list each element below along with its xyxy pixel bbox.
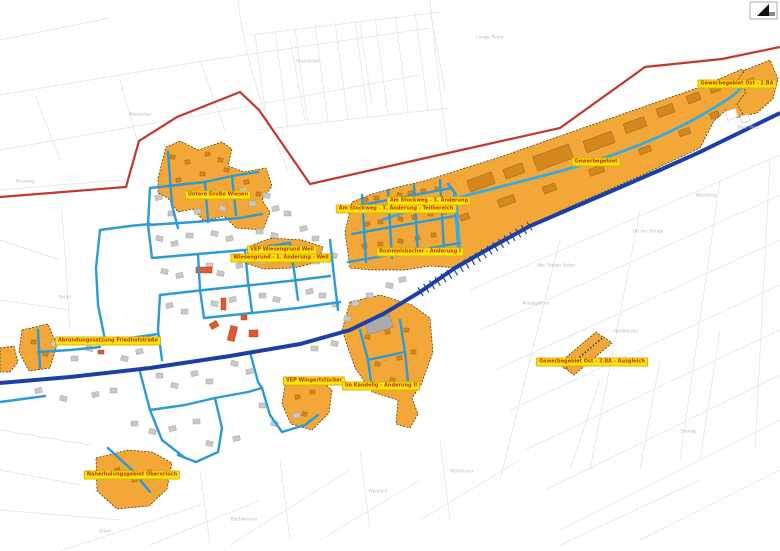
building bbox=[256, 192, 261, 196]
building bbox=[235, 262, 243, 269]
building bbox=[168, 425, 176, 432]
building bbox=[216, 270, 224, 277]
building bbox=[200, 172, 205, 176]
building bbox=[284, 211, 291, 216]
building bbox=[398, 239, 404, 244]
building bbox=[312, 236, 319, 241]
building bbox=[375, 362, 381, 367]
building bbox=[365, 222, 371, 227]
building bbox=[210, 300, 218, 307]
plan-label-wiesengrund-1-aenderung-weil[interactable]: Wiesengrund - 1. Änderung - Weil bbox=[230, 254, 331, 263]
building bbox=[209, 320, 219, 329]
building bbox=[205, 152, 210, 156]
building bbox=[249, 330, 258, 337]
map-basemap bbox=[0, 0, 780, 551]
building bbox=[397, 356, 403, 361]
building bbox=[305, 288, 313, 295]
building bbox=[227, 325, 237, 341]
building bbox=[193, 419, 200, 424]
plan-label-rommelsbacher-aenderung-1[interactable]: Rommelsbacher - Änderung I bbox=[376, 248, 464, 257]
building bbox=[91, 391, 99, 398]
building bbox=[271, 205, 279, 212]
plan-label-vep-wingertstuecker[interactable]: VEP Wingertstücker bbox=[283, 377, 345, 386]
building bbox=[131, 421, 138, 426]
plan-label-abrundungssatzung-friedhofstrasse[interactable]: Abrundungssatzung Friedhofstraße bbox=[55, 337, 161, 346]
building bbox=[311, 346, 318, 351]
building bbox=[181, 309, 188, 314]
zoning-map: Gewerbegebiet Ost - 2.BAGewerbegebietAm … bbox=[0, 0, 780, 551]
building bbox=[249, 201, 256, 206]
building bbox=[245, 368, 253, 375]
building bbox=[170, 155, 176, 160]
building bbox=[148, 428, 156, 435]
building bbox=[259, 403, 266, 408]
building bbox=[330, 340, 338, 347]
plan-label-im-kandelig-aenderung-2[interactable]: Im Kandelig - Änderung II bbox=[342, 382, 420, 391]
building bbox=[206, 379, 213, 384]
building bbox=[165, 302, 173, 309]
building bbox=[256, 229, 263, 234]
building bbox=[175, 272, 183, 279]
building bbox=[31, 340, 36, 344]
building bbox=[185, 160, 191, 165]
building bbox=[272, 296, 280, 303]
building bbox=[404, 328, 409, 332]
building bbox=[225, 235, 233, 242]
zone-im-kandelig[interactable] bbox=[342, 295, 433, 428]
building bbox=[98, 350, 104, 354]
building bbox=[155, 235, 163, 242]
building bbox=[205, 440, 213, 447]
building bbox=[385, 330, 391, 335]
building bbox=[295, 395, 301, 400]
building bbox=[228, 296, 236, 303]
building bbox=[221, 298, 226, 310]
zone-friedhofstrasse-west[interactable] bbox=[0, 346, 18, 372]
plan-label-am-stockweg-3-aenderung-teilbereich[interactable]: Am Stockweg - 3. Änderung - Teilbereich bbox=[336, 205, 457, 214]
north-arrow-icon bbox=[750, 2, 777, 19]
plan-label-gewerbegebiet-ost-2ba[interactable]: Gewerbegebiet Ost - 2.BA bbox=[698, 80, 777, 89]
building bbox=[120, 355, 128, 362]
building bbox=[34, 387, 42, 394]
building bbox=[135, 348, 143, 355]
building bbox=[244, 180, 250, 185]
plan-label-untere-grosse-wiesen[interactable]: Untere Große Wiesen bbox=[185, 191, 251, 200]
building bbox=[59, 395, 67, 402]
building bbox=[374, 196, 379, 200]
building bbox=[210, 230, 218, 237]
building bbox=[366, 293, 373, 298]
building bbox=[224, 168, 230, 173]
building bbox=[71, 356, 78, 361]
building bbox=[190, 370, 198, 377]
building bbox=[259, 293, 266, 298]
building bbox=[232, 435, 240, 442]
plan-label-gewerbegebiet[interactable]: Gewerbegebiet bbox=[572, 158, 621, 167]
building bbox=[176, 178, 182, 183]
plan-label-gewerbegebiet-ost-2ba-ausgleich[interactable]: Gewerbegebiet Ost - 2.BA - Ausgleich bbox=[536, 358, 648, 367]
building bbox=[156, 373, 163, 378]
building bbox=[378, 242, 383, 246]
building bbox=[411, 350, 416, 354]
building bbox=[262, 192, 270, 199]
building bbox=[241, 315, 247, 320]
building bbox=[170, 382, 178, 389]
building bbox=[385, 282, 393, 289]
building bbox=[310, 390, 315, 394]
building bbox=[170, 240, 178, 247]
building bbox=[110, 388, 117, 393]
building bbox=[398, 276, 406, 283]
building bbox=[218, 158, 224, 163]
building bbox=[154, 194, 162, 201]
building bbox=[302, 412, 308, 417]
building bbox=[431, 233, 436, 237]
building bbox=[398, 217, 404, 222]
building bbox=[319, 293, 326, 298]
building bbox=[160, 268, 168, 275]
building bbox=[186, 233, 193, 238]
building bbox=[299, 225, 307, 232]
building bbox=[365, 335, 371, 340]
plan-label-naherholungsgebiet-obererloch[interactable]: Naherholungsgebiet Obererloch bbox=[84, 471, 180, 480]
building bbox=[230, 360, 238, 367]
